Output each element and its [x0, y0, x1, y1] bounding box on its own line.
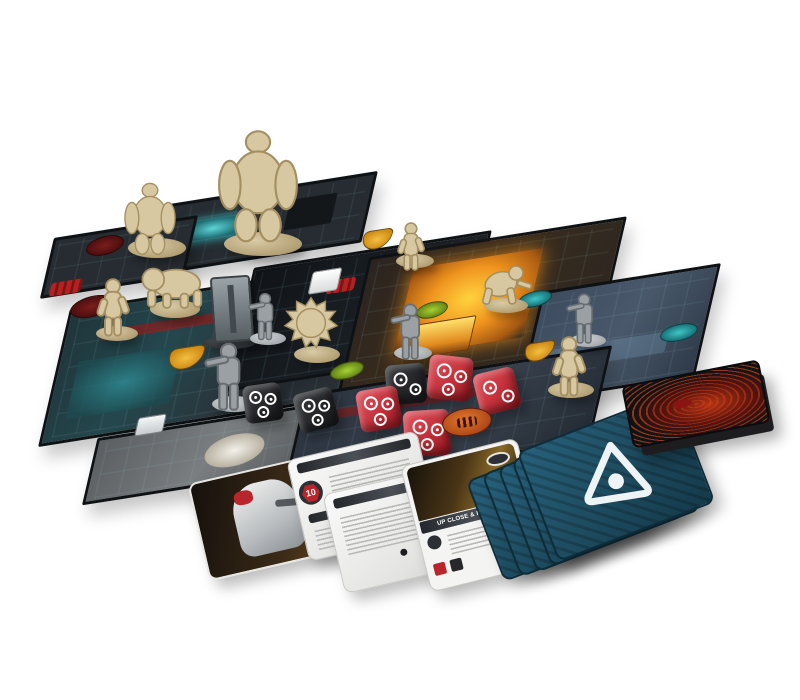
- red-die: [426, 354, 474, 402]
- boardgame-photo: 10 UP CLOSE & PERSONAL: [0, 0, 800, 700]
- cacodemon-miniature: [284, 292, 338, 354]
- ring-pip-icon: [373, 412, 388, 427]
- gear-pip-icon: [310, 413, 325, 428]
- ring-pip-icon: [454, 369, 468, 383]
- baron-miniature: [210, 126, 306, 244]
- red-die: [355, 385, 404, 434]
- black-die-icon: [449, 558, 464, 573]
- threat-token-sigil: [457, 416, 477, 429]
- gear-pip-icon: [256, 405, 270, 419]
- door-seam: [227, 285, 236, 332]
- gear-pip-icon: [264, 392, 278, 406]
- rubble-blast: [201, 429, 268, 472]
- zombie-miniature: [92, 278, 134, 338]
- tile-teal-glow: [65, 345, 182, 419]
- marine-miniature: [566, 290, 600, 346]
- mancubus-miniature: [112, 180, 188, 256]
- ring-pip-icon: [436, 363, 452, 379]
- ring-pip-icon: [363, 395, 379, 411]
- red-die-icon: [433, 562, 448, 577]
- gear-pip-icon: [393, 372, 408, 387]
- health-badge: 10: [297, 479, 326, 508]
- ring-pip-icon: [500, 388, 516, 404]
- gear-pip-icon: [317, 398, 332, 413]
- zombie-miniature: [394, 222, 428, 272]
- imp-miniature: [472, 262, 534, 308]
- ring-pip-icon: [441, 382, 455, 396]
- gear-pip-icon: [409, 383, 422, 396]
- weapon-range-icon: [426, 534, 443, 551]
- ring-pip-icon: [481, 379, 498, 396]
- marine-miniature: [390, 300, 428, 362]
- gear-pip-icon: [248, 390, 263, 405]
- gear-pip-icon: [300, 397, 317, 414]
- bullet-dot-icon: [399, 548, 407, 556]
- black-die: [242, 382, 285, 425]
- ring-pip-icon: [420, 438, 434, 452]
- health-value: 10: [300, 482, 322, 504]
- ring-pip-icon: [380, 396, 395, 411]
- pinky-miniature: [138, 262, 210, 310]
- marine-miniature: [248, 288, 280, 344]
